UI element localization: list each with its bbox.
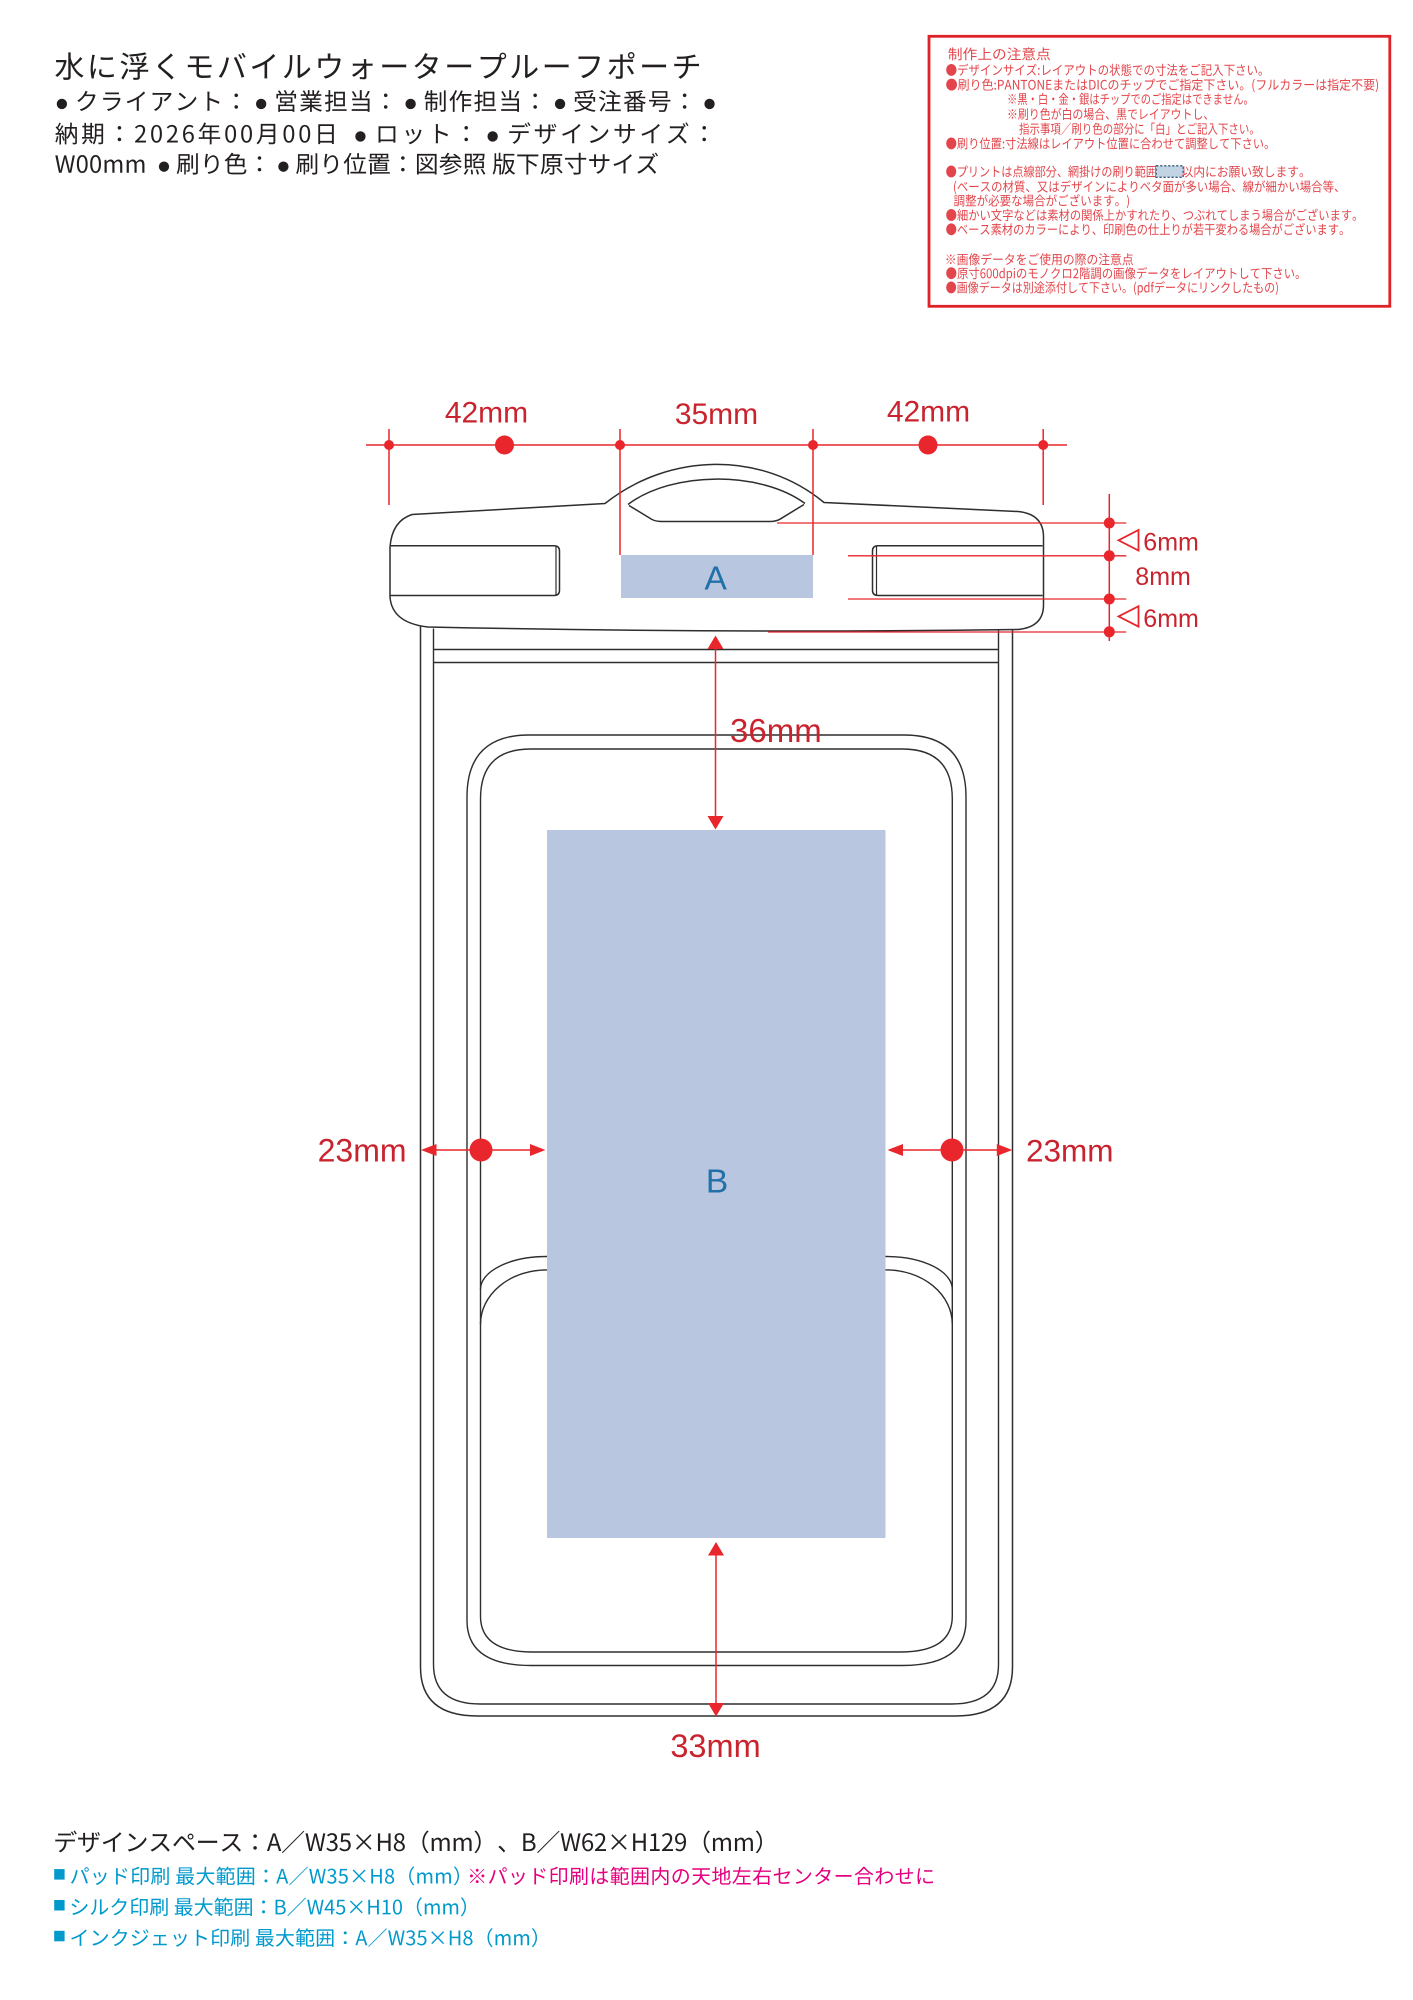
svg-text:6mm: 6mm bbox=[1143, 605, 1199, 633]
svg-text:A: A bbox=[705, 561, 728, 598]
svg-text:42mm: 42mm bbox=[887, 396, 970, 429]
svg-text:8mm: 8mm bbox=[1135, 563, 1191, 591]
svg-text:33mm: 33mm bbox=[670, 1728, 760, 1764]
svg-text:23mm: 23mm bbox=[1026, 1133, 1114, 1169]
svg-text:6mm: 6mm bbox=[1143, 529, 1199, 557]
svg-text:B: B bbox=[706, 1164, 728, 1201]
svg-text:23mm: 23mm bbox=[318, 1133, 407, 1169]
svg-text:36mm: 36mm bbox=[730, 712, 822, 749]
svg-text:35mm: 35mm bbox=[675, 398, 758, 431]
svg-text:42mm: 42mm bbox=[445, 397, 528, 430]
